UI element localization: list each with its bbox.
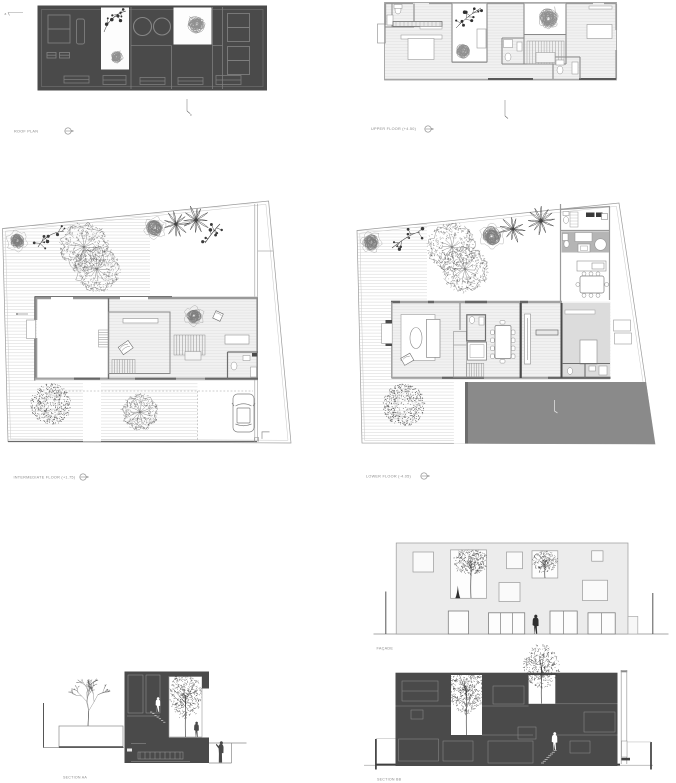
svg-text:SECTION AA: SECTION AA <box>63 776 87 780</box>
svg-text:LOWER FLOOR (-4.05): LOWER FLOOR (-4.05) <box>366 475 412 479</box>
svg-text:SECTION BB: SECTION BB <box>377 778 402 782</box>
svg-text:a: a <box>5 12 7 16</box>
svg-text:UPPER FLOOR (+4.50): UPPER FLOOR (+4.50) <box>371 127 417 131</box>
svg-text:ROOF PLAN: ROOF PLAN <box>14 130 38 134</box>
svg-text:INTERMEDIATE FLOOR (+1.75): INTERMEDIATE FLOOR (+1.75) <box>14 476 76 480</box>
svg-text:FAÇADE: FAÇADE <box>377 647 394 651</box>
svg-text:b: b <box>190 113 192 117</box>
